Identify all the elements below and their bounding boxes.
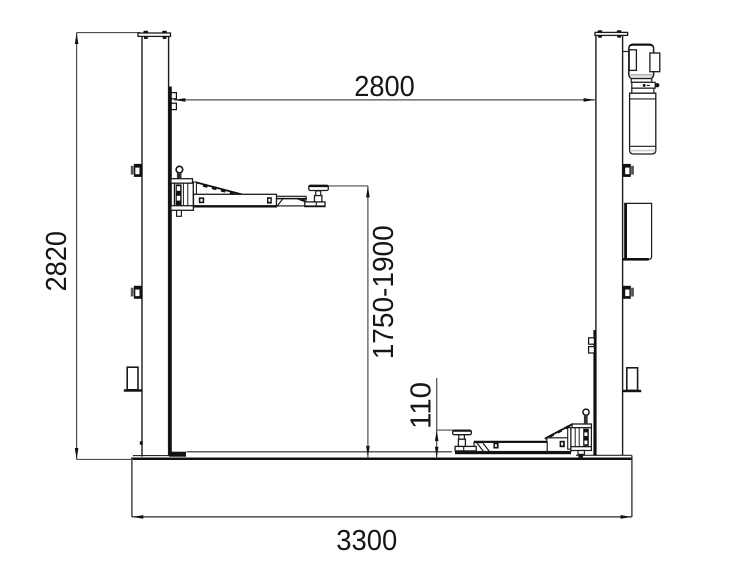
svg-text:3300: 3300 bbox=[336, 525, 397, 557]
svg-text:110: 110 bbox=[405, 382, 437, 429]
svg-text:1750-1900: 1750-1900 bbox=[368, 225, 400, 359]
svg-text:2820: 2820 bbox=[41, 231, 73, 292]
svg-text:2800: 2800 bbox=[354, 71, 415, 103]
